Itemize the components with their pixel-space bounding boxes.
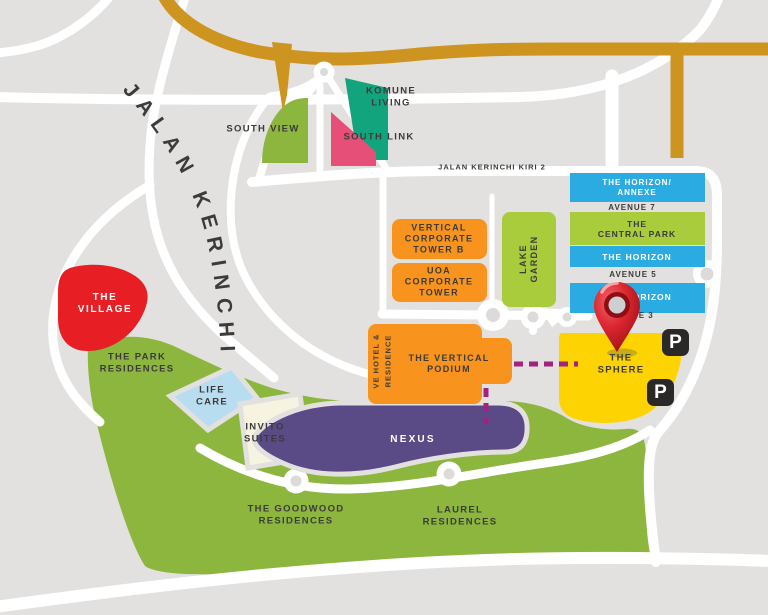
block-central-park: [570, 212, 705, 245]
block-lake-garden: [502, 212, 556, 307]
map-base-layer: JALAN KERINCHI: [0, 0, 768, 615]
location-pin-icon: [588, 274, 650, 360]
block-horizon-annexe: [570, 173, 705, 202]
highway-gold: [162, 0, 768, 158]
block-south-view: [262, 98, 308, 163]
parking-icon: P: [647, 379, 674, 406]
block-vertical-corporate-tower-b: [392, 219, 487, 259]
block-horizon-upper: [570, 246, 705, 267]
map: JALAN KERINCHI KOMUNE LIVING SOUTH VIEW …: [0, 0, 768, 615]
block-uoa-corporate-tower: [392, 263, 487, 302]
parking-icon: P: [662, 329, 689, 356]
block-vertical-podium: [368, 324, 512, 404]
